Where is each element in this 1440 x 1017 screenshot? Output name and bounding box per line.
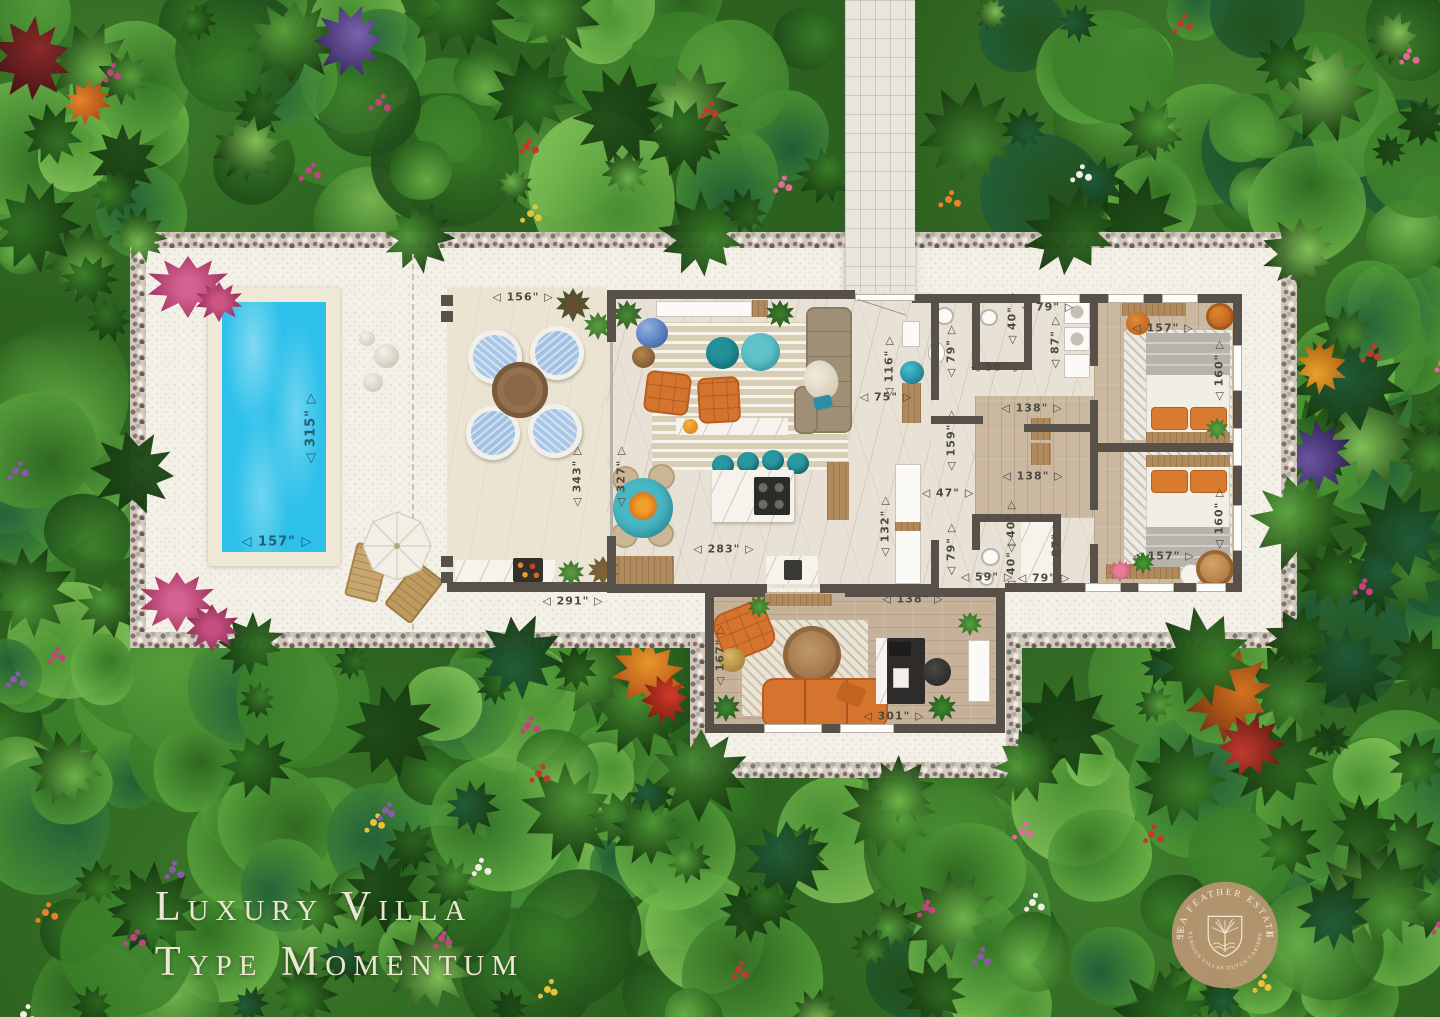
dimension-label: ◁ 283" ▷	[693, 543, 754, 556]
flower-cluster	[1177, 20, 1184, 27]
hanging-chair	[1196, 550, 1234, 587]
headboard	[1146, 455, 1230, 467]
dimension-label: ◁ 79" ▷	[1022, 301, 1075, 314]
deco-stone	[374, 344, 399, 368]
den-coffee-table	[783, 626, 841, 684]
dimension-label: ◁ 157" ▷	[1133, 550, 1194, 563]
flower-cluster	[305, 167, 312, 174]
window	[840, 724, 894, 733]
bbq-grill	[513, 558, 543, 582]
window	[1085, 583, 1121, 592]
wall	[931, 540, 939, 592]
title-line-2: Type Momentum	[155, 935, 524, 990]
bar-stool	[762, 450, 784, 471]
armchair	[697, 376, 741, 424]
dimension-label: ◁ 116" ▷	[883, 335, 896, 396]
entry-shelf	[902, 321, 920, 347]
window	[1138, 583, 1174, 592]
dimension-label: ◁ 75" ▷	[860, 391, 913, 404]
dimension-label: ◁ 40" ▷	[1006, 292, 1019, 345]
sink	[980, 309, 998, 326]
round-table-teal	[706, 337, 739, 369]
flower-cluster	[1148, 831, 1155, 838]
entry-walkway	[845, 0, 915, 322]
flower-cluster	[169, 866, 176, 873]
dimension-label: ◁ 327" ▷	[615, 445, 628, 506]
window	[1196, 583, 1226, 592]
wall	[931, 296, 939, 400]
wall	[972, 296, 980, 370]
wall	[996, 588, 1005, 732]
dimension-label: ◁ 291" ▷	[542, 595, 603, 608]
dimension-label: ◁ 79" ▷	[1018, 572, 1071, 585]
plan-title: Luxury Villa Type Momentum	[155, 880, 524, 991]
flower-cluster	[544, 986, 551, 993]
brown-pouf	[632, 346, 655, 368]
deco-vase-teal	[900, 361, 924, 384]
flower-cluster	[977, 953, 984, 960]
patio-table	[492, 362, 548, 418]
dimension-label: ◁ 132" ▷	[879, 495, 892, 556]
dimension-label: ◁ 160" ▷	[1213, 339, 1226, 400]
wall	[1024, 424, 1098, 432]
flower-cluster	[1403, 53, 1410, 60]
wall	[607, 290, 616, 342]
pillow-orange	[1151, 470, 1188, 493]
flower-cluster	[475, 864, 482, 871]
villa-site-plan: ◁ 156" ▷◁ 343" ▷◁ 327" ▷◁ 283" ▷◁ 291" ▷…	[0, 0, 1440, 1017]
dimension-label: ◁ 87" ▷	[1050, 519, 1063, 572]
flower-cluster	[1019, 828, 1026, 835]
toilet	[981, 548, 1000, 566]
patio-rear-wall	[447, 582, 611, 592]
kitchen-counter	[612, 556, 674, 584]
pebble-border-right	[1281, 232, 1297, 648]
pebble-border-bottom-right	[1022, 632, 1297, 648]
dimension-label: ◁ 79" ▷	[945, 325, 958, 378]
dimension-label: ◁ 138" ▷	[1001, 402, 1062, 415]
wall	[705, 588, 765, 597]
wall	[1090, 296, 1098, 366]
patio-umbrella	[362, 511, 432, 581]
pillow-orange	[1151, 407, 1188, 430]
sideboard	[968, 640, 990, 702]
console-cabinet	[752, 300, 768, 317]
table-centerpiece	[629, 492, 657, 520]
dimension-label: ◁ 167" ▷	[714, 624, 727, 685]
dimension-label: ◁ 138" ▷	[1002, 470, 1063, 483]
espresso-machine	[784, 560, 802, 580]
dimension-label: ◁ 160" ▷	[1213, 487, 1226, 548]
dimension-label: ◁ 59" ▷	[961, 571, 1014, 584]
wall	[1090, 443, 1242, 452]
dryer	[1064, 327, 1090, 351]
title-line-1: Luxury Villa	[155, 880, 524, 935]
window	[1108, 294, 1144, 303]
patio-post	[441, 556, 453, 567]
orange-pouf	[1206, 303, 1234, 330]
flower-cluster	[1029, 899, 1036, 906]
wall	[1090, 452, 1098, 510]
pebble-border-ext-bottom	[690, 762, 1022, 778]
deco-stone	[359, 331, 375, 346]
estate-logo: SEA FEATHER ESTATE LUXURIOUS VILLAS DUTC…	[1169, 879, 1281, 991]
wardrobe-wood	[1031, 443, 1051, 465]
dimension-label: ◁ 301" ▷	[863, 710, 924, 723]
dimension-label: ◁ 47" ▷	[922, 487, 975, 500]
patio-post	[441, 311, 453, 322]
flower-cluster	[12, 467, 19, 474]
dimension-label: ◁ 87" ▷	[1049, 316, 1062, 369]
tall-cabinet	[827, 462, 849, 520]
flower-cluster	[10, 676, 17, 683]
laundry-cabinet	[1064, 354, 1090, 378]
dimension-label: ◁ 156" ▷	[492, 291, 553, 304]
foliage	[153, 729, 226, 814]
deco-stone	[363, 373, 383, 392]
window	[764, 724, 822, 733]
window	[1162, 294, 1198, 303]
laptop	[893, 668, 909, 688]
dimension-label: ◁ 157" ▷	[242, 535, 313, 550]
desk-side-panel	[876, 638, 887, 704]
dimension-label: ◁ 58" ▷	[971, 361, 1024, 374]
dimension-label: ◁ 157" ▷	[1132, 322, 1193, 335]
dimension-label: ◁ 79" ▷	[945, 523, 958, 576]
blue-pouf	[636, 318, 668, 348]
sliding-door-track	[610, 342, 613, 536]
pantry-shelf	[895, 522, 921, 531]
flower-cluster	[20, 1011, 27, 1017]
wall	[972, 514, 980, 550]
window	[1233, 428, 1242, 466]
flower-cluster	[1076, 171, 1083, 178]
office-chair	[923, 658, 951, 686]
flower-cluster	[527, 210, 534, 217]
dimension-label: ◁ 159" ▷	[945, 409, 958, 470]
flower-cluster	[778, 181, 785, 188]
orange-bowl	[683, 419, 698, 434]
armchair	[643, 369, 693, 416]
dimension-label: ◁ 343" ▷	[571, 445, 584, 506]
cooktop	[754, 477, 790, 515]
dimension-label: ◁ 138" ▷	[882, 593, 943, 606]
flower-cluster	[1436, 921, 1440, 928]
window	[1233, 505, 1242, 551]
flower-cluster	[945, 196, 952, 203]
flower-cluster	[107, 69, 114, 76]
wall	[607, 290, 855, 299]
window	[1233, 345, 1242, 391]
tv-console	[656, 301, 752, 317]
round-table-teal	[741, 333, 780, 371]
flower-cluster	[922, 904, 929, 911]
patio-post	[441, 295, 453, 306]
printer	[889, 642, 911, 656]
dimension-label: ◁ 315" ▷	[304, 393, 319, 464]
